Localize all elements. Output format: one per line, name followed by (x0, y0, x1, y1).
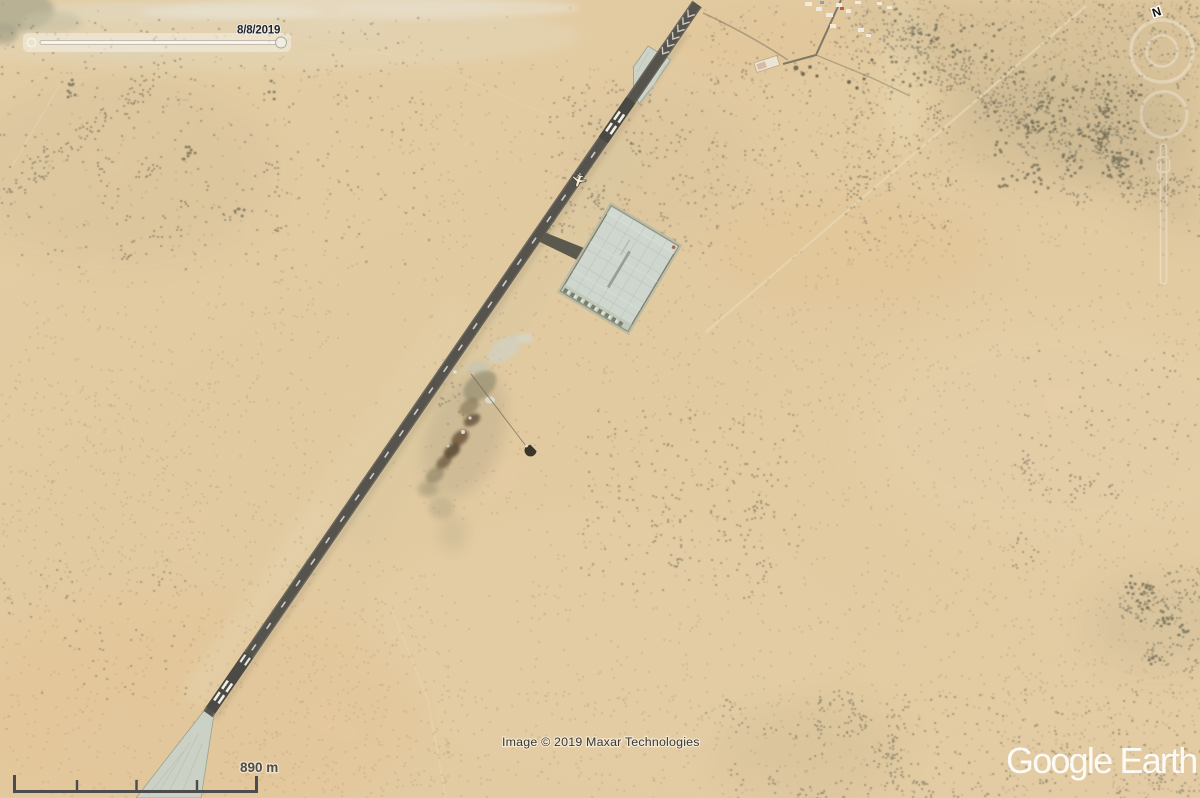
svg-text:890 m: 890 m (240, 760, 278, 775)
svg-text:Image © 2019 Maxar Technologie: Image © 2019 Maxar Technologies (502, 735, 700, 749)
svg-text:8/8/2019: 8/8/2019 (237, 25, 280, 37)
svg-text:Google Earth: Google Earth (1006, 740, 1197, 781)
